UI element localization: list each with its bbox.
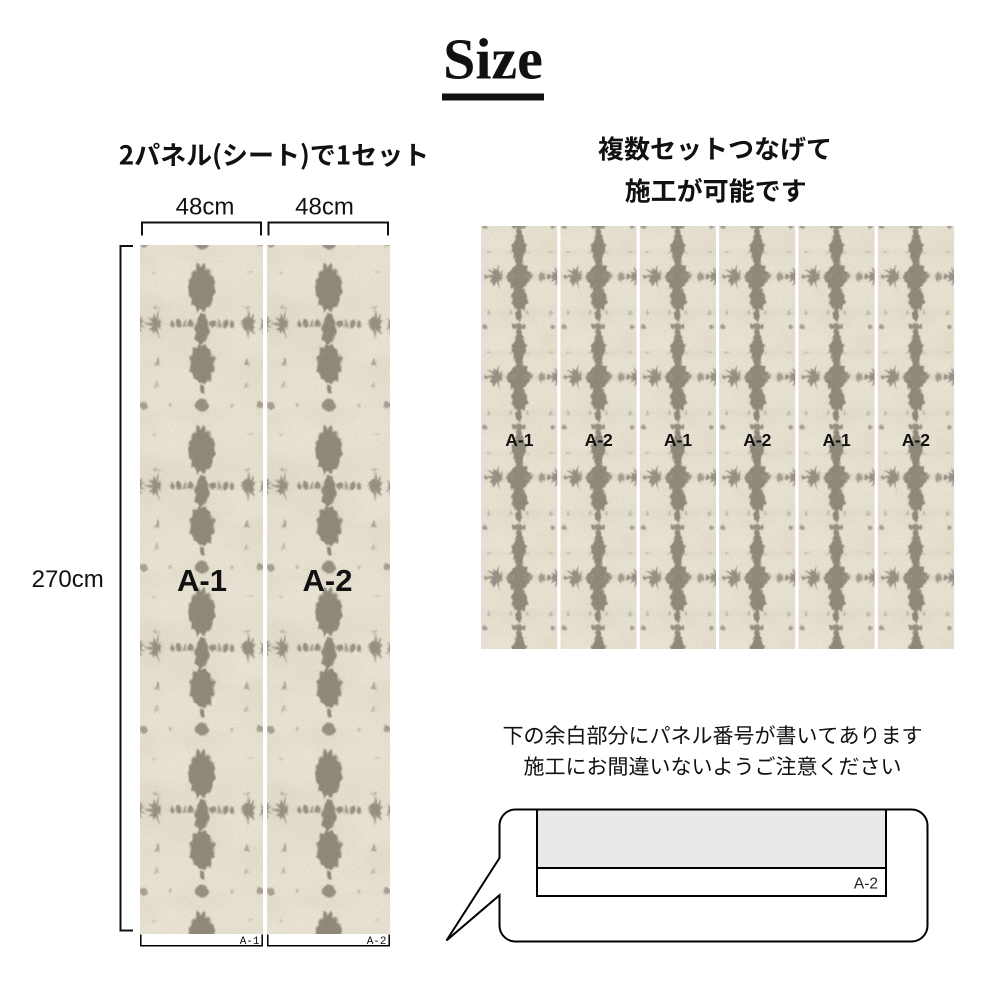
svg-text:A-1: A-1 bbox=[822, 430, 850, 450]
svg-text:A-2: A-2 bbox=[902, 430, 930, 450]
svg-text:A-1: A-1 bbox=[240, 936, 260, 948]
svg-text:A-1: A-1 bbox=[664, 430, 692, 450]
svg-text:270cm: 270cm bbox=[32, 566, 104, 593]
svg-text:A-2: A-2 bbox=[854, 876, 878, 893]
svg-text:A-1: A-1 bbox=[505, 430, 533, 450]
svg-text:A-2: A-2 bbox=[743, 430, 771, 450]
svg-text:A-2: A-2 bbox=[303, 563, 353, 598]
svg-text:A-2: A-2 bbox=[585, 430, 613, 450]
svg-text:48cm: 48cm bbox=[176, 194, 235, 221]
svg-text:48cm: 48cm bbox=[295, 194, 354, 221]
svg-text:Size: Size bbox=[443, 27, 543, 92]
svg-text:A-2: A-2 bbox=[367, 936, 387, 948]
svg-text:A-1: A-1 bbox=[177, 563, 227, 598]
